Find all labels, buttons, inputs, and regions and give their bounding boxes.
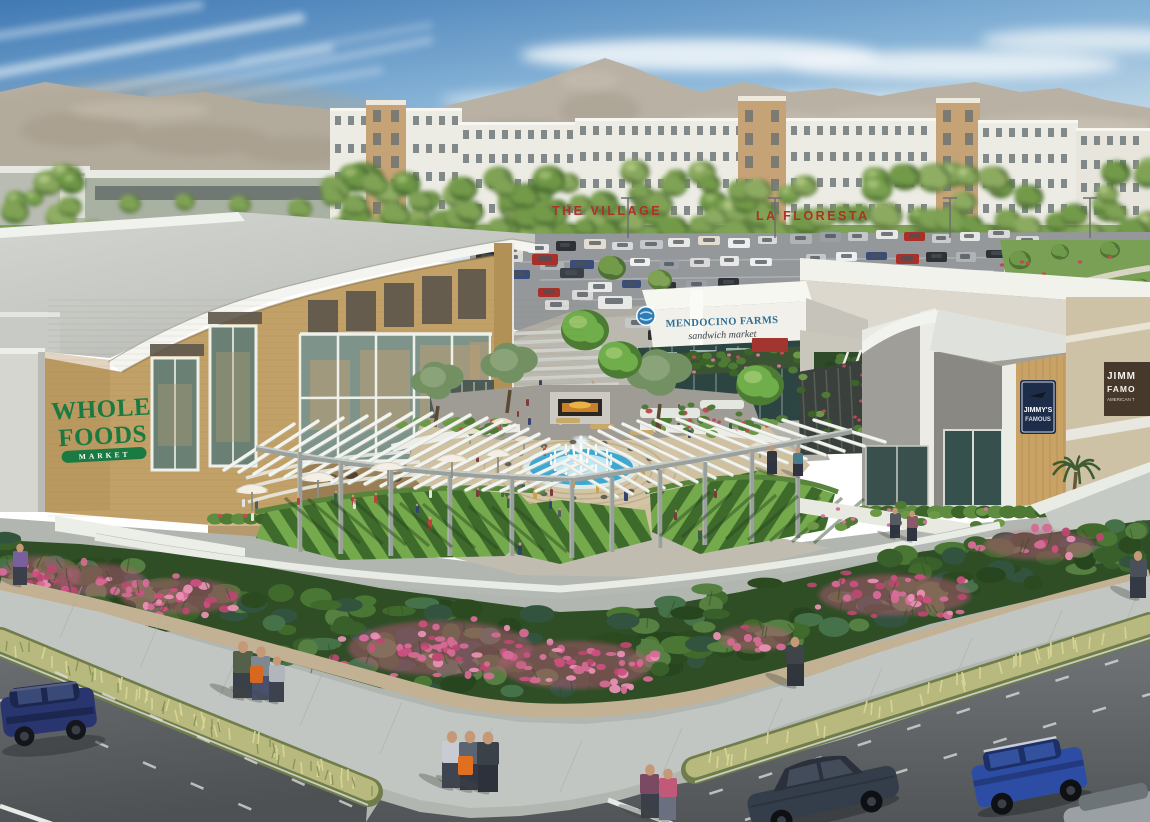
svg-text:FAMO: FAMO [1107, 384, 1136, 394]
svg-text:THE VILLAGE: THE VILLAGE [552, 204, 662, 218]
svg-text:FAMOUS: FAMOUS [1025, 417, 1051, 423]
svg-text:AMERICAN T: AMERICAN T [1107, 397, 1135, 402]
svg-text:JIMMY'S: JIMMY'S [1024, 407, 1053, 414]
svg-text:LA FLORESTA: LA FLORESTA [756, 209, 870, 223]
svg-text:JIMM: JIMM [1107, 371, 1136, 382]
